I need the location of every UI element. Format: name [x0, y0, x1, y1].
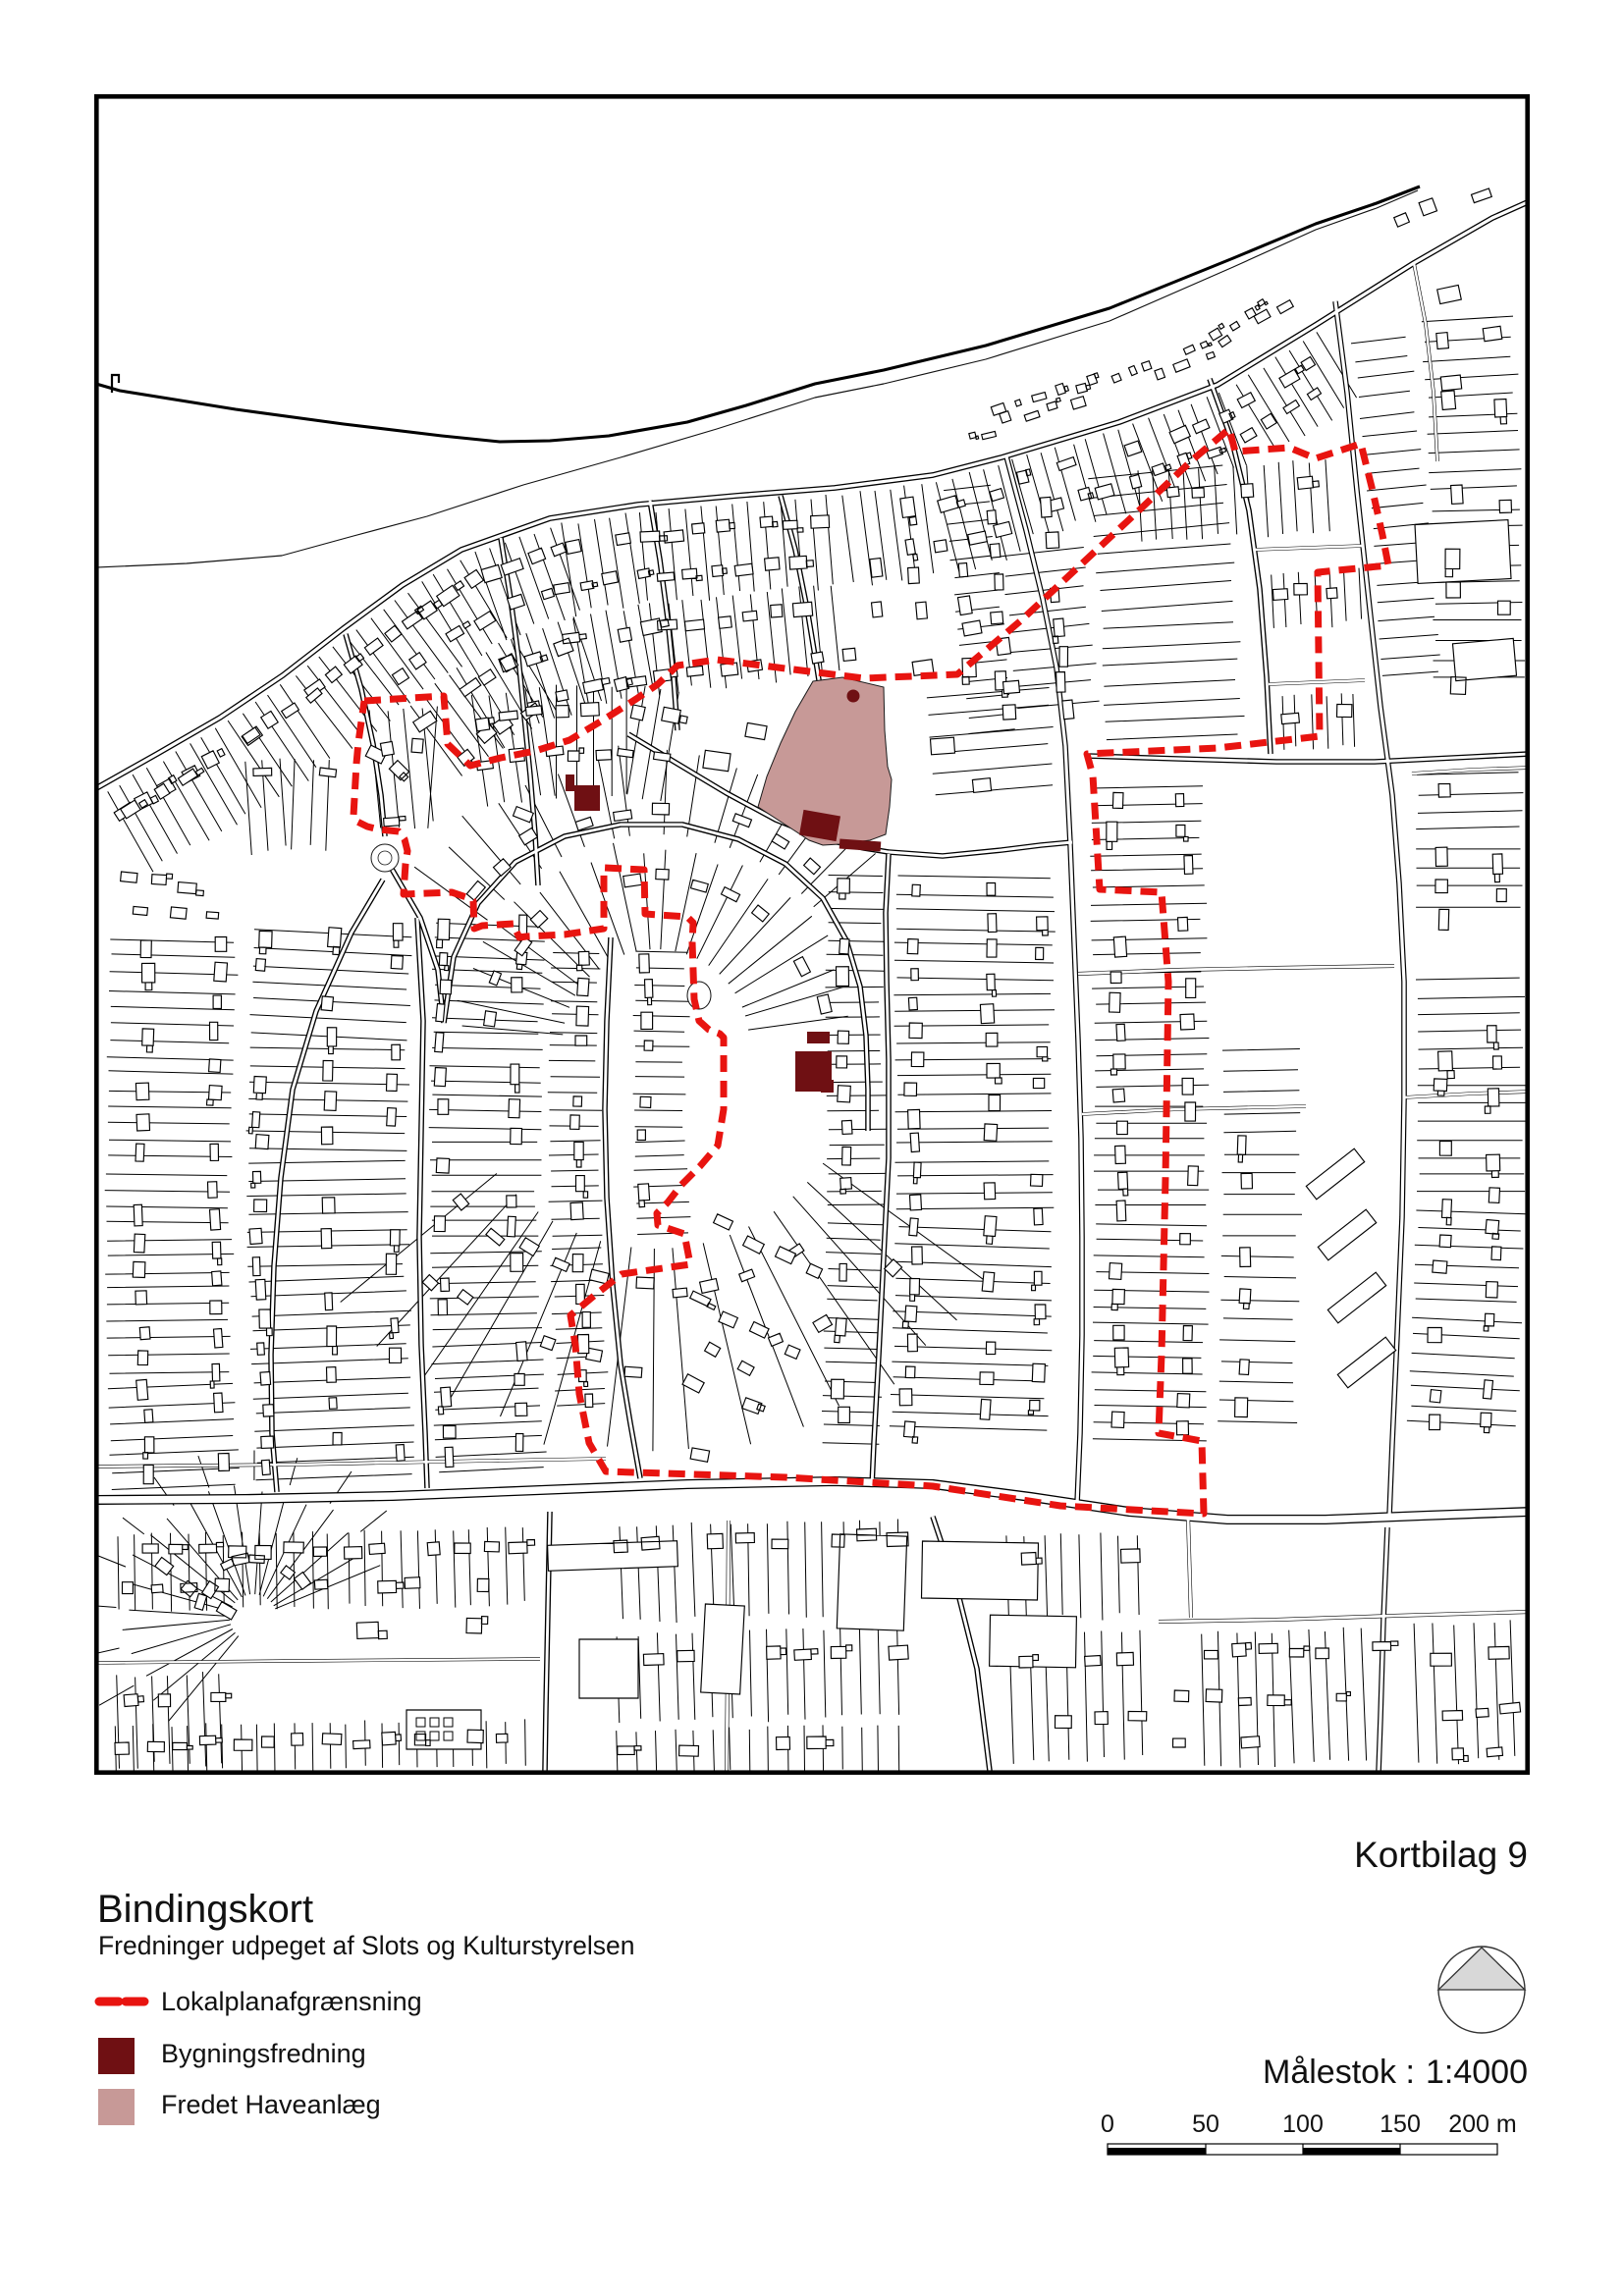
svg-text:Målestok :: Målestok :: [1263, 2054, 1415, 2091]
svg-text:0: 0: [1101, 2110, 1114, 2138]
svg-text:Fredninger udpeget af Slots og: Fredninger udpeget af Slots og Kultursty…: [98, 1931, 635, 1960]
svg-text:Kortbilag 9: Kortbilag 9: [1354, 1835, 1528, 1875]
svg-text:Bindingskort: Bindingskort: [97, 1888, 313, 1931]
svg-text:Bygningsfredning: Bygningsfredning: [161, 2039, 366, 2068]
svg-text:100: 100: [1282, 2110, 1324, 2138]
svg-text:150: 150: [1380, 2110, 1421, 2138]
svg-text:200 m: 200 m: [1448, 2110, 1516, 2138]
svg-text:Fredet Haveanlæg: Fredet Haveanlæg: [161, 2090, 381, 2119]
svg-text:50: 50: [1192, 2110, 1219, 2138]
svg-text:1:4000: 1:4000: [1426, 2054, 1528, 2091]
svg-text:Lokalplanafgrænsning: Lokalplanafgrænsning: [161, 1987, 422, 2016]
